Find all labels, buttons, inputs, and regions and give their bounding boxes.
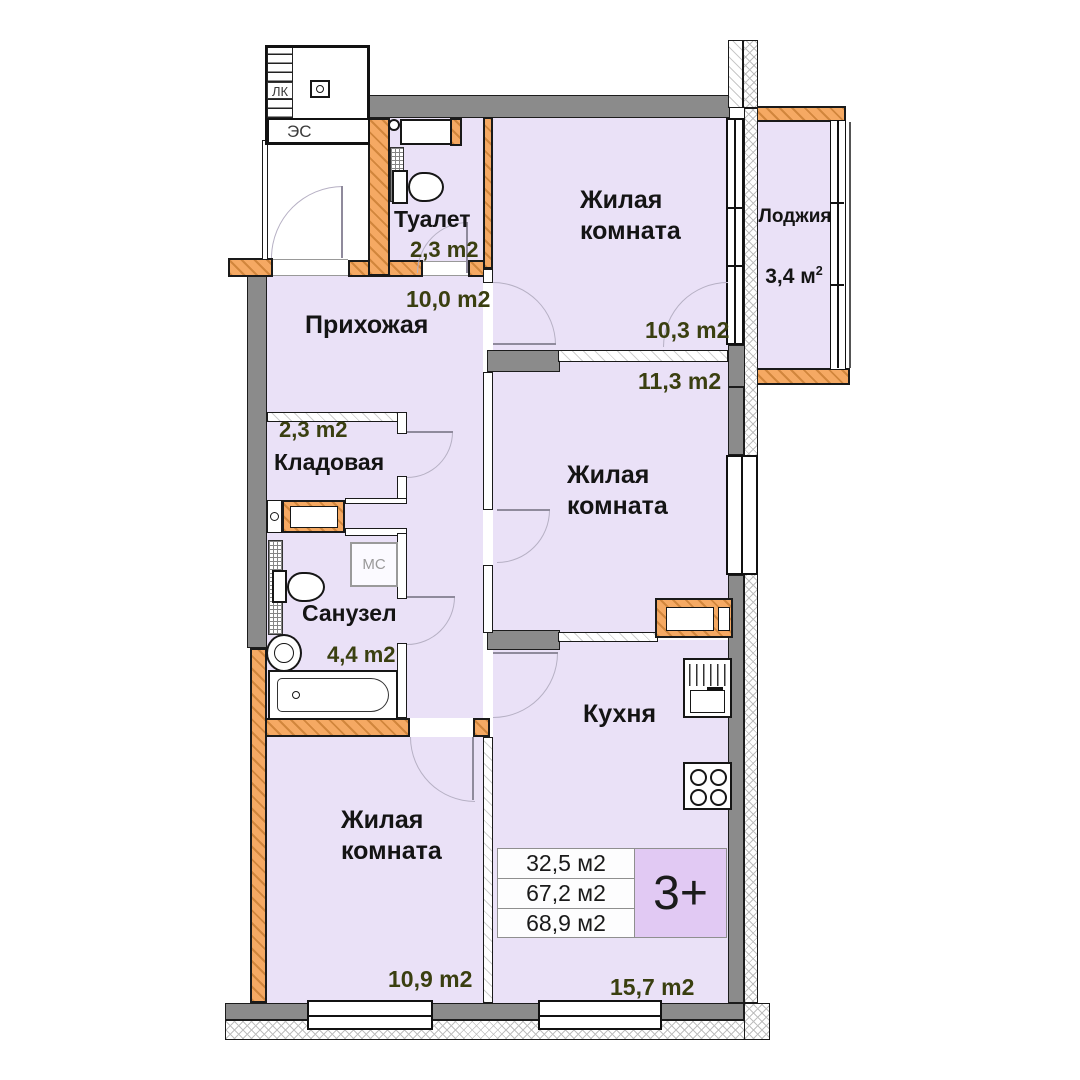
- loggia-balcony-window: [726, 118, 744, 345]
- living-top-door-leaf: [493, 343, 556, 345]
- kitchen-area: 15,7 m2: [610, 974, 694, 1001]
- detector-icon: [310, 80, 330, 98]
- partition-livmid-kitchen: [558, 632, 658, 642]
- partition-bath-right-b: [397, 643, 407, 718]
- bathroom-door-leaf: [407, 596, 455, 598]
- living-mid-area: 11,3 m2: [638, 368, 721, 395]
- bath-sink-icon: [290, 506, 338, 528]
- bath-toilet-bowl-icon: [287, 572, 325, 602]
- wall-mid-top: [483, 117, 493, 269]
- kitchen-sink-unit-icon: [683, 658, 732, 718]
- entry-door-leaf: [341, 186, 343, 258]
- wall-left-orange: [250, 648, 267, 1003]
- loggia-area: 3,4 м2: [754, 264, 834, 289]
- wall-bottom: [225, 1003, 744, 1020]
- partition-mid-seg-2: [483, 372, 493, 510]
- stairs-label-cell: ЛК: [267, 82, 293, 99]
- vent-duct-large: [666, 607, 714, 631]
- stove-icon: [683, 762, 732, 810]
- living-bottom-door-leaf: [472, 737, 474, 800]
- living-mid-door-leaf: [497, 509, 550, 511]
- hinge-circle-icon: [388, 119, 400, 131]
- wall-right-upper: [728, 387, 744, 455]
- loggia-glazing: [830, 120, 846, 370]
- loggia-floor: [758, 122, 830, 368]
- partition-mid-seg-1: [483, 269, 493, 283]
- wall-mid-block-1: [487, 350, 560, 372]
- outer-column-diagonal: [728, 40, 743, 108]
- partition-storage-bottom: [345, 498, 407, 504]
- wall-entry-left: [228, 258, 273, 277]
- washing-machine-label: МС: [362, 556, 385, 573]
- staircase-icon: [267, 48, 293, 82]
- toilet-name: Туалет: [394, 206, 471, 233]
- window-living-mid: [726, 455, 758, 575]
- kitchen-name: Кухня: [583, 699, 656, 730]
- washing-machine-box: МС: [350, 542, 398, 587]
- toilet-bowl-icon: [408, 172, 444, 202]
- living-mid-name: Жилая комната: [567, 460, 702, 522]
- loggia-name: Лоджия: [758, 206, 832, 228]
- hinge-cell: [267, 500, 282, 533]
- elevator-cell: ЭС: [267, 118, 370, 144]
- area-apartment-total: 67,2 м2: [498, 879, 634, 909]
- window-kitchen: [538, 1000, 662, 1030]
- partition-livbot-kitchen: [483, 737, 493, 1003]
- wall-toilet-left: [368, 118, 390, 276]
- wall-mid-block-2: [487, 630, 560, 650]
- loggia-outer-line: [849, 122, 851, 368]
- partition-bath-right-a: [397, 533, 407, 599]
- area-overall-total: 68,9 м2: [498, 909, 634, 938]
- living-bottom-area: 10,9 m2: [388, 966, 472, 993]
- apartment-type-badge: 3+: [634, 849, 726, 937]
- bathtub-icon: [268, 670, 398, 720]
- toilet-tank-icon: [392, 170, 408, 204]
- area-living-total: 32,5 м2: [498, 849, 634, 879]
- storage-name: Кладовая: [274, 449, 384, 476]
- kitchen-door-leaf: [493, 652, 558, 654]
- hallway-name: Прихожая: [305, 310, 428, 341]
- wall-bath-bottom-a: [252, 718, 410, 737]
- area-summary-rows: 32,5 м2 67,2 м2 68,9 м2: [498, 849, 634, 937]
- basin-icon: [266, 634, 302, 672]
- floor-plan: ЛК ЭС МС: [0, 0, 1080, 1080]
- area-summary-table: 32,5 м2 67,2 м2 68,9 м2 3+: [497, 848, 727, 938]
- staircase-icon-lower: [267, 99, 293, 118]
- partition-livtop-livmid: [558, 350, 728, 362]
- bathroom-name: Санузел: [302, 600, 397, 627]
- window-living-bottom: [307, 1000, 433, 1030]
- living-bottom-name: Жилая комната: [341, 805, 476, 867]
- wall-left-gray: [247, 268, 267, 648]
- outer-column-cross: [743, 40, 758, 108]
- toilet-area: 2,3 m2: [410, 237, 479, 263]
- vent-duct-small: [718, 607, 730, 631]
- toilet-sink-icon: [400, 119, 452, 145]
- partition-storage-right-a: [397, 412, 407, 434]
- bathroom-area: 4,4 m2: [327, 642, 396, 668]
- entry-door-opening: [273, 259, 348, 276]
- wall-bath-bottom-b: [473, 718, 490, 737]
- outer-wall-corner: [744, 1003, 770, 1040]
- entry-door-arc: [271, 186, 343, 258]
- partition-mid-seg-3: [483, 565, 493, 633]
- elevator-label: ЭС: [287, 122, 312, 142]
- vestibule-wall-line: [262, 140, 268, 260]
- wall-loggia-bottom: [750, 368, 850, 385]
- storage-area: 2,3 m2: [279, 417, 348, 443]
- bath-toilet-tank-icon: [272, 570, 287, 603]
- stairs-label: ЛК: [272, 84, 288, 99]
- storage-door-leaf: [407, 431, 453, 433]
- living-top-name: Жилая комната: [580, 185, 715, 247]
- hallway-area: 10,0 m2: [406, 286, 490, 313]
- living-top-area: 10,3 m2: [645, 317, 729, 344]
